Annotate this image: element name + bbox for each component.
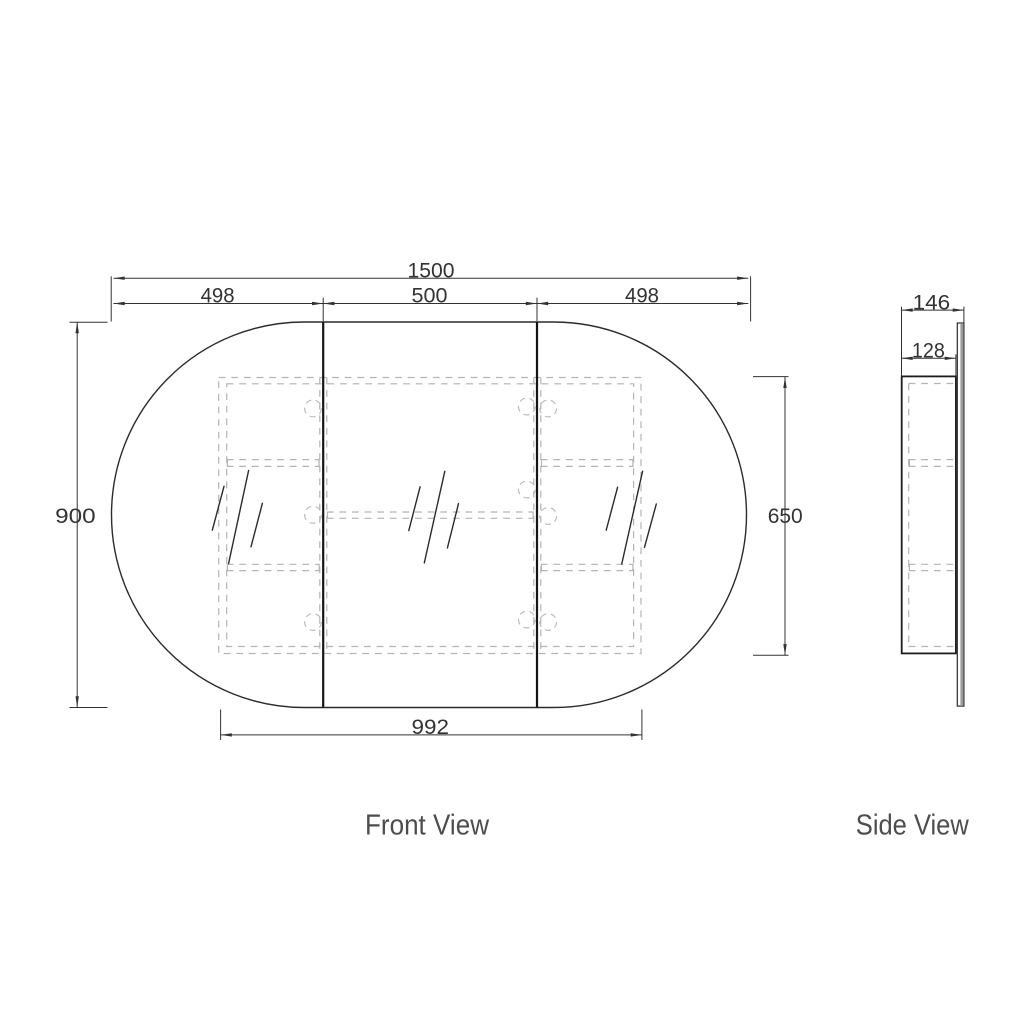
svg-text:128: 128 <box>912 340 945 363</box>
svg-text:650: 650 <box>768 505 803 528</box>
svg-text:Side View: Side View <box>856 810 970 842</box>
svg-text:900: 900 <box>55 505 95 528</box>
svg-text:500: 500 <box>412 285 448 308</box>
svg-text:1500: 1500 <box>408 259 455 282</box>
svg-text:146: 146 <box>913 291 951 314</box>
svg-text:992: 992 <box>412 716 450 739</box>
svg-text:498: 498 <box>625 285 659 308</box>
svg-text:498: 498 <box>201 285 235 308</box>
svg-text:Front View: Front View <box>365 810 490 842</box>
